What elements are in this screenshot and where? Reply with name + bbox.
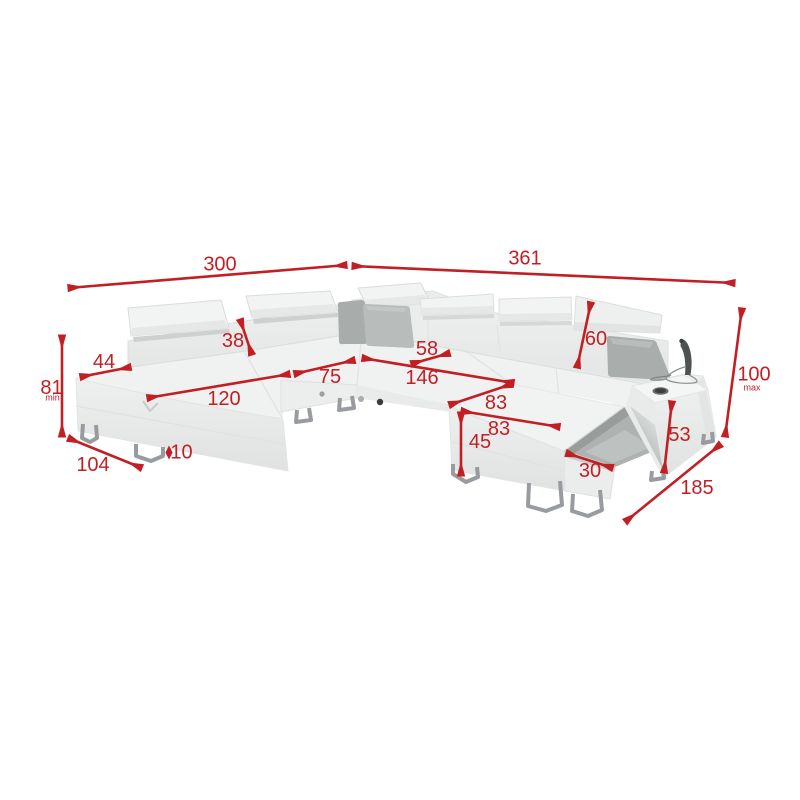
svg-text:83: 83 <box>485 392 507 414</box>
svg-text:146: 146 <box>405 367 438 389</box>
svg-text:300: 300 <box>203 254 236 276</box>
svg-text:45: 45 <box>469 431 491 453</box>
svg-text:75: 75 <box>319 366 341 388</box>
svg-text:83: 83 <box>488 418 510 440</box>
svg-text:min: min <box>45 393 60 403</box>
svg-text:38: 38 <box>222 330 244 352</box>
svg-text:60: 60 <box>585 328 607 350</box>
svg-text:104: 104 <box>76 454 109 476</box>
svg-text:44: 44 <box>93 351 115 373</box>
svg-text:max: max <box>743 383 761 393</box>
svg-text:30: 30 <box>579 460 601 482</box>
svg-text:58: 58 <box>416 338 438 360</box>
svg-text:185: 185 <box>680 477 713 499</box>
svg-text:53: 53 <box>668 424 690 446</box>
svg-text:120: 120 <box>207 388 240 410</box>
svg-text:10: 10 <box>170 442 192 464</box>
svg-text:361: 361 <box>508 248 541 270</box>
